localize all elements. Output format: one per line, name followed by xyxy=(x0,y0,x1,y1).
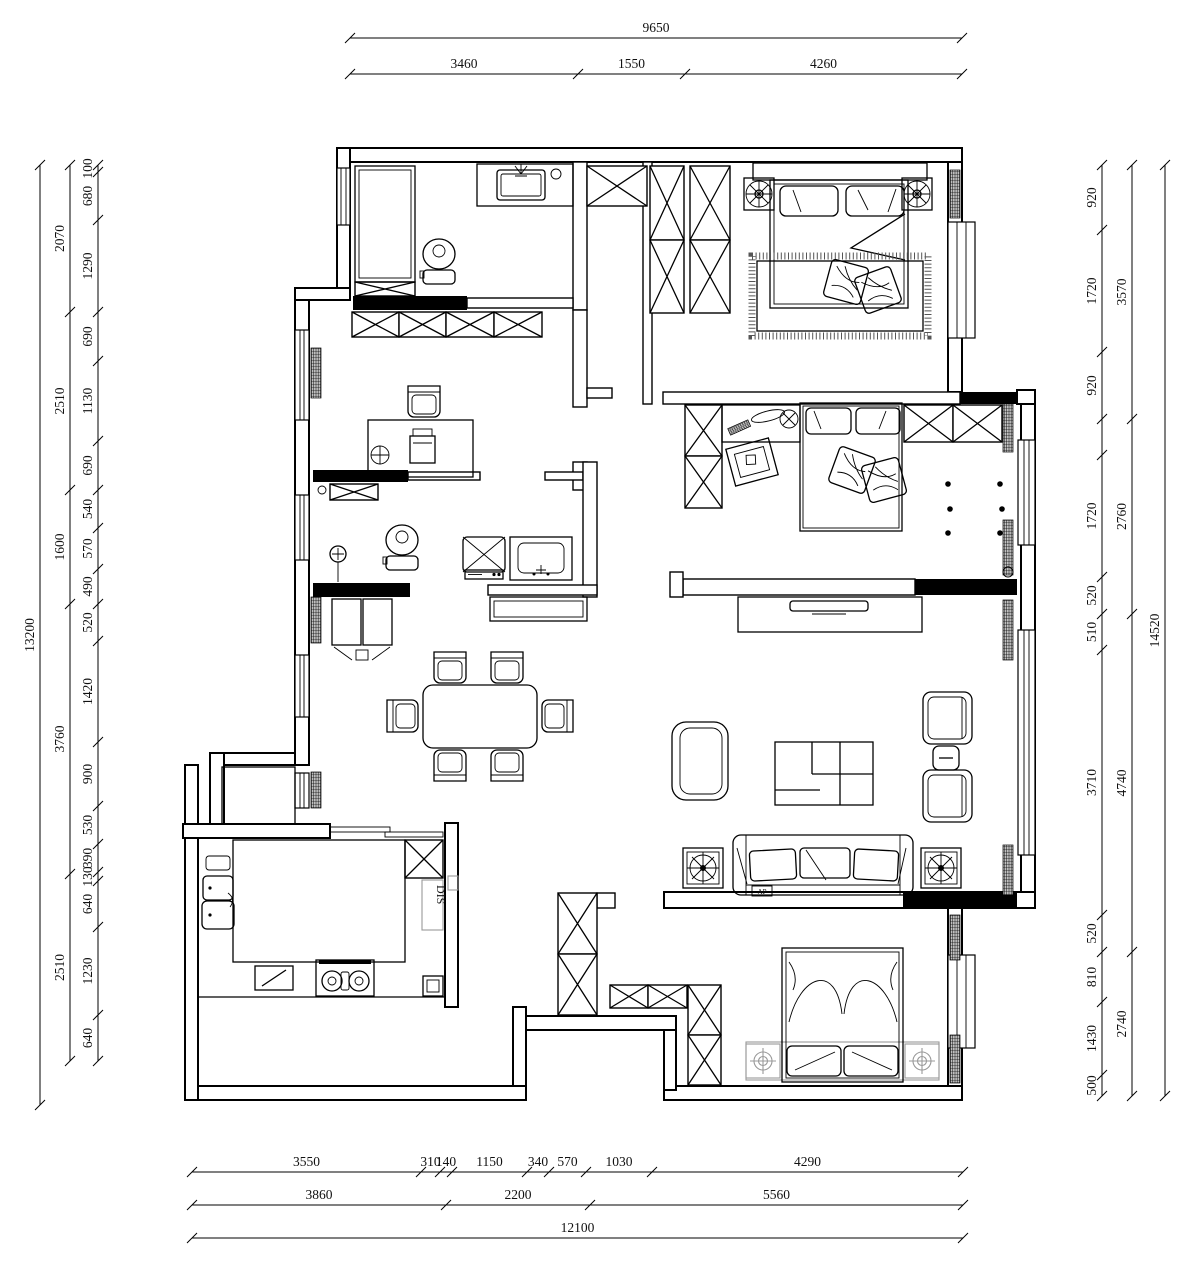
svg-text:390: 390 xyxy=(80,848,95,869)
floor-plan-canvas: AP DIS 96 xyxy=(0,0,1200,1267)
armchair xyxy=(923,770,972,822)
svg-text:9650: 9650 xyxy=(643,20,670,35)
cushion xyxy=(854,266,903,315)
dining-chair xyxy=(542,700,573,732)
dining-table xyxy=(423,685,537,748)
svg-text:4740: 4740 xyxy=(1114,769,1129,796)
svg-text:140: 140 xyxy=(436,1154,457,1169)
accent-chair xyxy=(672,722,728,800)
cushion xyxy=(828,446,877,495)
side-table xyxy=(933,746,959,770)
window xyxy=(337,168,350,225)
svg-text:1430: 1430 xyxy=(1084,1025,1099,1052)
kitchen-island xyxy=(233,840,405,962)
lamp-icon xyxy=(909,1048,935,1074)
pillow xyxy=(856,408,900,434)
desk xyxy=(368,420,473,477)
pillow xyxy=(780,186,838,216)
room-study xyxy=(368,386,473,477)
svg-text:3570: 3570 xyxy=(1114,278,1129,305)
kitchen-sink xyxy=(202,856,234,929)
rug xyxy=(752,256,928,336)
svg-text:13200: 13200 xyxy=(22,618,37,652)
keyboard-icon xyxy=(728,420,751,435)
svg-text:1550: 1550 xyxy=(618,56,645,71)
lamp-icon xyxy=(746,181,772,207)
sliding-door-panel[interactable] xyxy=(330,827,390,832)
cutting-board xyxy=(255,966,293,990)
svg-text:3860: 3860 xyxy=(306,1187,333,1202)
pantry xyxy=(222,767,295,824)
svg-text:14520: 14520 xyxy=(1147,613,1162,647)
svg-text:920: 920 xyxy=(1084,187,1099,208)
svg-text:1290: 1290 xyxy=(80,252,95,279)
floor-dots xyxy=(945,481,1005,536)
svg-text:2510: 2510 xyxy=(52,954,67,981)
svg-text:2760: 2760 xyxy=(1114,503,1129,530)
floor-plan-page: AP DIS 96 xyxy=(0,0,1200,1267)
radiator xyxy=(1003,404,1013,452)
window xyxy=(1018,630,1035,855)
dining-chair xyxy=(434,652,466,683)
svg-text:680: 680 xyxy=(80,186,95,207)
dim-bottom-overall: 12100 xyxy=(187,1220,968,1243)
radiator xyxy=(950,915,960,960)
svg-text:1150: 1150 xyxy=(476,1154,503,1169)
svg-text:520: 520 xyxy=(1084,585,1099,606)
refrigerator-icon xyxy=(332,599,392,660)
bench xyxy=(490,597,587,621)
dim-right-segments: 9201720920172052051037105208101430500 xyxy=(1084,160,1107,1101)
dim-top-overall: 9650 xyxy=(345,20,967,43)
plant-icon xyxy=(683,848,723,888)
svg-text:100: 100 xyxy=(80,158,95,179)
svg-text:130: 130 xyxy=(80,866,95,887)
bay-window xyxy=(948,222,975,338)
dim-left-groups: 20702510160037602510 xyxy=(52,160,75,1066)
picture-frame xyxy=(726,438,778,486)
floor-drain-icon xyxy=(330,546,346,582)
svg-text:1720: 1720 xyxy=(1084,502,1099,529)
pillow xyxy=(806,408,851,434)
dim-right-groups: 3570276047402740 xyxy=(1114,160,1137,1101)
svg-text:2740: 2740 xyxy=(1114,1010,1129,1037)
seat-cushion xyxy=(853,849,899,881)
window xyxy=(295,495,309,560)
dim-bottom-groups: 386022005560 xyxy=(187,1187,968,1210)
dim-top-segments: 346015504260 xyxy=(345,56,967,79)
hob-box xyxy=(423,976,443,996)
bathroom-vanity xyxy=(510,537,572,580)
dining-chair xyxy=(387,700,418,732)
window xyxy=(295,773,309,808)
bed-single xyxy=(800,403,902,531)
dim-right-outer: 14520 xyxy=(1147,160,1170,1101)
dining-chair xyxy=(491,652,523,683)
svg-text:2070: 2070 xyxy=(52,225,67,252)
window xyxy=(295,655,309,717)
svg-text:4290: 4290 xyxy=(794,1154,821,1169)
radiator xyxy=(311,348,321,398)
svg-text:500: 500 xyxy=(1084,1075,1099,1096)
stove-icon xyxy=(316,960,374,996)
room-bathroom-top xyxy=(355,164,573,284)
dining-chair xyxy=(434,750,466,781)
svg-text:3760: 3760 xyxy=(52,725,67,752)
room-living: AP xyxy=(672,692,972,896)
radiator xyxy=(950,1035,960,1083)
lamp-icon xyxy=(750,1048,776,1074)
radiator xyxy=(950,170,960,218)
bed-bottom xyxy=(782,948,903,1082)
radiator xyxy=(311,772,321,808)
svg-text:3710: 3710 xyxy=(1084,769,1099,796)
svg-text:570: 570 xyxy=(80,538,95,559)
svg-text:1230: 1230 xyxy=(80,957,95,984)
svg-text:1720: 1720 xyxy=(1084,277,1099,304)
plant-icon xyxy=(921,848,961,888)
lamp-icon xyxy=(904,181,930,207)
svg-text:920: 920 xyxy=(1084,375,1099,396)
dim-left-outer: 13200 xyxy=(22,160,45,1110)
svg-text:490: 490 xyxy=(80,576,95,597)
svg-text:690: 690 xyxy=(80,326,95,347)
svg-text:810: 810 xyxy=(1084,967,1099,988)
radiator xyxy=(1003,600,1013,660)
svg-text:640: 640 xyxy=(80,894,95,915)
svg-text:1130: 1130 xyxy=(80,388,95,415)
window xyxy=(1018,440,1035,545)
radiator xyxy=(311,597,321,643)
headboard xyxy=(753,163,927,180)
room-master-bedroom xyxy=(744,163,932,336)
dining-chair xyxy=(491,750,523,781)
svg-text:900: 900 xyxy=(80,764,95,785)
svg-text:3550: 3550 xyxy=(293,1154,320,1169)
shower-enclosure xyxy=(355,166,415,282)
svg-text:340: 340 xyxy=(528,1154,549,1169)
svg-text:520: 520 xyxy=(80,612,95,633)
toilet-icon xyxy=(420,239,455,284)
svg-text:1420: 1420 xyxy=(80,678,95,705)
tv-icon xyxy=(790,601,868,611)
svg-text:530: 530 xyxy=(80,815,95,836)
washing-machine-icon xyxy=(463,537,505,579)
tv-console xyxy=(738,597,922,632)
svg-text:3460: 3460 xyxy=(451,56,478,71)
svg-text:570: 570 xyxy=(557,1154,578,1169)
cushion xyxy=(823,259,870,306)
cushion xyxy=(861,457,908,504)
room-bathroom-mid xyxy=(318,486,587,621)
svg-text:4260: 4260 xyxy=(810,56,837,71)
svg-text:640: 640 xyxy=(80,1028,95,1049)
svg-text:2510: 2510 xyxy=(52,387,67,414)
desk xyxy=(722,405,800,442)
svg-text:1030: 1030 xyxy=(606,1154,633,1169)
sofa-tag-label: AP xyxy=(758,888,767,896)
svg-text:690: 690 xyxy=(80,455,95,476)
desk-chair xyxy=(408,386,440,417)
toilet-icon xyxy=(383,525,418,570)
svg-text:510: 510 xyxy=(1084,622,1099,643)
coffee-table xyxy=(775,742,873,805)
room-bedroom-bottom xyxy=(746,948,939,1082)
room-dining xyxy=(222,599,573,824)
svg-text:12100: 12100 xyxy=(561,1220,595,1235)
bay-window xyxy=(948,955,975,1048)
sofa xyxy=(733,835,913,896)
sliding-door-panel[interactable] xyxy=(385,832,443,837)
armchair xyxy=(923,692,972,744)
printer-icon xyxy=(410,429,435,463)
window xyxy=(295,330,309,420)
svg-text:5560: 5560 xyxy=(763,1187,790,1202)
svg-text:1600: 1600 xyxy=(52,533,67,560)
svg-text:2200: 2200 xyxy=(505,1187,532,1202)
svg-text:520: 520 xyxy=(1084,923,1099,944)
dim-bottom-segments: 3550310140115034057010304290 xyxy=(187,1154,968,1177)
radiator xyxy=(1003,845,1013,895)
dishwasher-text: DIS xyxy=(434,885,448,904)
desk-items xyxy=(728,407,798,435)
dim-left-segments: 1006801290690113069054057049052014209005… xyxy=(80,158,103,1066)
vanity-counter xyxy=(477,164,573,206)
seat-cushion xyxy=(749,849,797,881)
svg-text:540: 540 xyxy=(80,499,95,520)
